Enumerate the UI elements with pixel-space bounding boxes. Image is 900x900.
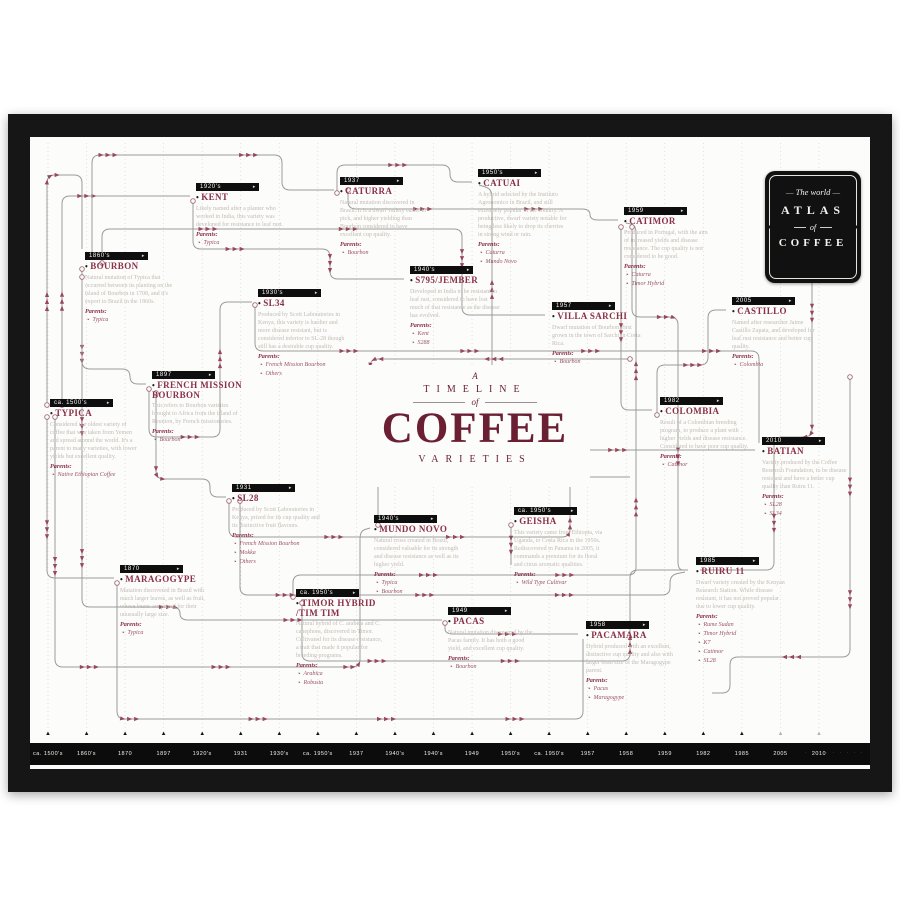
- variety-description: Natural mutation discovered in Brazil. I…: [340, 199, 430, 239]
- flow-arrow-icon: [634, 368, 638, 373]
- variety-node-timor-hybrid: ca. 1950's▸•TIMOR HYBRID /TIM TIMNatural…: [296, 589, 388, 688]
- parents-list: ‣ Kent‣ S288: [412, 330, 502, 348]
- axis-tick-triangle-icon: ▲: [546, 731, 552, 737]
- badge-arrow-icon: ▸: [353, 591, 356, 596]
- variety-node-sl28: 1931▸•SL28Produced by Scott Laboratories…: [232, 484, 324, 567]
- parents-list: ‣ SL28‣ SL34: [764, 501, 854, 519]
- poster-page: ▲▲▲▲▲▲▲▲▲▲▲▲▲▲▲▲▲▲▲▲▲ ca. 1500's▸•TYPICA…: [0, 0, 900, 900]
- axis-year-label: 1950's: [501, 751, 520, 757]
- variety-description: Likely named after a planter who worked …: [196, 205, 286, 229]
- parent-item: ‣ SL34: [764, 510, 854, 519]
- variety-name: •TYPICA: [50, 409, 142, 419]
- title-rule-left: [413, 402, 465, 403]
- logo-notch-right: [855, 226, 858, 229]
- axis-tick-triangle-icon: ▲: [508, 731, 514, 737]
- flow-arrow-icon: [810, 425, 814, 430]
- year-badge: 1870▸: [120, 565, 183, 573]
- flow-arrow-icon: [520, 717, 525, 721]
- flow-arrow-icon: [45, 520, 49, 525]
- flow-arrow-icon: [467, 349, 472, 353]
- year-badge: ca. 1500's▸: [50, 399, 113, 407]
- badge-arrow-icon: ▸: [609, 304, 612, 309]
- parents-label: Parents:: [152, 428, 244, 435]
- flow-arrow-icon: [484, 357, 489, 361]
- year-badge: ca. 1950's▸: [296, 589, 359, 597]
- axis-tick-triangle-icon: ▲: [662, 731, 668, 737]
- flow-arrow-icon: [240, 247, 245, 251]
- parents-list: ‣ French Mission Bourbon‣ Others: [260, 361, 350, 379]
- logo-notch-left: [768, 226, 771, 229]
- flow-arrow-icon: [460, 256, 464, 261]
- parent-item: ‣ Catimor: [698, 648, 788, 657]
- flow-arrow-icon: [263, 717, 268, 721]
- flow-arrow-icon: [60, 306, 64, 311]
- flow-arrow-icon: [402, 163, 407, 167]
- variety-node-sl34: 1930's▸•SL34Produced by Scott Laboratori…: [258, 289, 350, 379]
- axis-year-label: 1937: [349, 751, 363, 757]
- parent-item: ‣ Caturra: [626, 271, 716, 280]
- parent-arrow-icon: ‣: [412, 332, 415, 337]
- flow-arrow-icon: [388, 163, 393, 167]
- flow-arrow-icon: [848, 597, 852, 602]
- variety-description: Considered the oldest variety of coffee …: [50, 421, 140, 461]
- flow-arrow-icon: [378, 357, 383, 361]
- parent-arrow-icon: ‣: [764, 512, 767, 517]
- parent-item: ‣ Timor Hybrid: [626, 280, 716, 289]
- flow-arrow-icon: [45, 527, 49, 532]
- flow-arrow-icon: [702, 349, 707, 353]
- badge-arrow-icon: ▸: [643, 623, 646, 628]
- badge-arrow-icon: ▸: [431, 517, 434, 522]
- flow-arrow-icon: [45, 306, 49, 311]
- flow-arrow-icon: [218, 349, 222, 354]
- flow-arrow-icon: [506, 717, 511, 721]
- axis-year-label: 1958: [619, 751, 633, 757]
- year-label: ca. 1950's: [300, 590, 333, 596]
- flow-arrow-icon: [509, 550, 513, 555]
- year-badge: 1937▸: [340, 177, 403, 185]
- axis-tick-triangle-icon: ▲: [431, 731, 437, 737]
- flow-arrow-icon: [45, 299, 49, 304]
- flow-arrow-icon: [226, 247, 231, 251]
- year-badge: 1982▸: [660, 397, 723, 405]
- parent-arrow-icon: ‣: [698, 641, 701, 646]
- variety-name: •PACAMARA: [586, 631, 678, 641]
- variety-name: •RUIRU 11: [696, 567, 788, 577]
- flow-arrow-icon: [354, 349, 359, 353]
- flow-arrow-icon: [569, 593, 574, 597]
- variety-description: Developed in India to be resistant to le…: [410, 288, 500, 320]
- parent-item: ‣ Kent: [412, 330, 502, 339]
- flow-arrow-icon: [509, 536, 513, 541]
- variety-name: •SL34: [258, 299, 350, 309]
- flow-arrow-icon: [670, 315, 676, 319]
- axis-tick-triangle-icon: ▲: [700, 731, 706, 737]
- parent-item: ‣ Pacas: [588, 685, 678, 694]
- flow-arrow-icon: [622, 448, 627, 452]
- flow-arrow-icon: [555, 593, 560, 597]
- flow-arrow-icon: [291, 618, 296, 622]
- year-badge: 2005▸: [732, 297, 795, 305]
- parent-arrow-icon: ‣: [662, 463, 665, 468]
- parent-item: ‣ SL28: [698, 657, 788, 666]
- axis-year-label: 1870: [118, 751, 132, 757]
- flow-arrow-icon: [53, 564, 57, 569]
- variety-description: Result of a Colombian breeding program, …: [660, 419, 750, 451]
- node-bullet-icon: •: [696, 567, 699, 576]
- badge-arrow-icon: ▸: [571, 509, 574, 514]
- year-label: 1940's: [378, 516, 399, 522]
- flow-arrow-icon: [80, 556, 84, 561]
- parents-list: ‣ Colombia: [734, 361, 824, 370]
- node-bullet-icon: •: [624, 217, 627, 226]
- parent-arrow-icon: ‣: [450, 665, 453, 670]
- flow-arrow-icon: [84, 194, 89, 198]
- axis-tick-triangle-icon: ▲: [739, 731, 745, 737]
- flow-arrow-icon: [634, 497, 638, 502]
- variety-node-geisha: ca. 1950's▸•GEISHAThis variety came from…: [514, 507, 606, 588]
- axis-tick-triangle-icon: ▲: [315, 731, 321, 737]
- year-label: 1959: [628, 208, 644, 214]
- parents-list: ‣ Native Ethiopian Coffee: [52, 471, 142, 480]
- node-bullet-icon: •: [296, 599, 299, 608]
- title-rule-right: [485, 402, 537, 403]
- parent-item: ‣ Timor Hybrid: [698, 630, 788, 639]
- year-badge: 1940's▸: [374, 515, 437, 523]
- year-badge: 1957▸: [552, 302, 615, 310]
- variety-description: Natural mutation of Typica that occurred…: [85, 274, 175, 306]
- badge-arrow-icon: ▸: [467, 268, 470, 273]
- variety-description: Natural mutation discovered by the Pacas…: [448, 629, 538, 653]
- parent-arrow-icon: ‣: [480, 251, 483, 256]
- axis-year-label: ca. 1950's: [534, 751, 564, 757]
- axis-year-label: ca. 1500's: [33, 751, 63, 757]
- variety-name: •CATIMOR: [624, 217, 716, 227]
- parent-item: ‣ Wild Type Cultivar: [516, 579, 606, 588]
- parents-label: Parents:: [732, 353, 824, 360]
- path-origin-circle: [443, 621, 448, 626]
- node-bullet-icon: •: [152, 381, 155, 390]
- year-label: 1985: [700, 558, 716, 564]
- parents-list: ‣ Pacas‣ Maragogype: [588, 685, 678, 703]
- flow-arrow-icon: [233, 247, 238, 251]
- parents-label: Parents:: [120, 621, 212, 628]
- path-origin-circle: [115, 581, 120, 586]
- parents-list: ‣ Typica: [87, 316, 177, 325]
- parent-item: ‣ S288: [412, 339, 502, 348]
- flow-arrow-icon: [246, 153, 251, 157]
- flow-arrow-icon: [683, 363, 688, 367]
- flow-arrow-icon: [80, 665, 85, 669]
- parent-arrow-icon: ‣: [234, 560, 237, 565]
- path-origin-circle: [848, 375, 853, 380]
- flow-arrow-icon: [55, 173, 60, 177]
- variety-name: •MARAGOGYPE: [120, 575, 212, 585]
- badge-arrow-icon: ▸: [107, 401, 110, 406]
- year-badge: 1930's▸: [258, 289, 321, 297]
- parent-item: ‣ Maragogype: [588, 694, 678, 703]
- parent-arrow-icon: ‣: [154, 438, 157, 443]
- badge-arrow-icon: ▸: [753, 559, 756, 564]
- flow-arrow-icon: [848, 590, 852, 595]
- flow-arrow-icon: [53, 571, 57, 576]
- flow-arrow-icon: [634, 375, 638, 380]
- variety-name: •CATUAI: [478, 179, 570, 189]
- node-bullet-icon: •: [232, 494, 235, 503]
- badge-arrow-icon: ▸: [142, 254, 145, 259]
- year-badge: 1985▸: [696, 557, 759, 565]
- variety-node-batian: 2010▸•BATIANVariety produced by the Coff…: [762, 437, 854, 519]
- node-bullet-icon: •: [410, 276, 413, 285]
- node-bullet-icon: •: [196, 193, 199, 202]
- badge-arrow-icon: ▸: [177, 567, 180, 572]
- flow-arrow-icon: [460, 349, 465, 353]
- flow-arrow-icon: [848, 604, 852, 609]
- parent-arrow-icon: ‣: [698, 659, 701, 664]
- parent-item: ‣ Robusta: [298, 679, 388, 688]
- parent-item: ‣ Typica: [87, 316, 177, 325]
- parent-arrow-icon: ‣: [198, 241, 201, 246]
- flow-arrow-icon: [253, 153, 258, 157]
- node-bullet-icon: •: [120, 575, 123, 584]
- axis-tick-triangle-icon: ▲: [353, 731, 359, 737]
- variety-node-catimor: 1959▸•CATIMORProduced in Portugal, with …: [624, 207, 716, 289]
- flow-arrow-icon: [218, 356, 222, 361]
- parents-list: ‣ Typica: [198, 239, 288, 248]
- year-badge: 1860's▸: [85, 252, 148, 260]
- year-label: ca. 1500's: [54, 400, 87, 406]
- variety-description: This variety came from Ethiopia, via Uga…: [514, 529, 604, 569]
- parent-arrow-icon: ‣: [376, 590, 379, 595]
- parent-arrow-icon: ‣: [234, 551, 237, 556]
- parents-label: Parents:: [410, 322, 502, 329]
- year-label: 1937: [344, 178, 360, 184]
- parents-label: Parents:: [624, 263, 716, 270]
- flow-arrow-icon: [239, 153, 244, 157]
- parent-arrow-icon: ‣: [734, 363, 737, 368]
- title-coffee: COFFEE: [360, 408, 590, 450]
- variety-name: •TIMOR HYBRID /TIM TIM: [296, 599, 388, 618]
- parent-item: ‣ Others: [234, 558, 324, 567]
- path-origin-circle: [45, 415, 50, 420]
- parent-arrow-icon: ‣: [588, 687, 591, 692]
- parent-item: ‣ Bourbon: [450, 663, 540, 672]
- year-badge: 1959▸: [624, 207, 687, 215]
- atlas-of-coffee-logo: — The world — ATLAS of COFFEE: [765, 171, 861, 283]
- flow-arrow-icon: [45, 292, 49, 297]
- parents-label: Parents:: [552, 350, 644, 357]
- axis-year-label: 1957: [581, 751, 595, 757]
- flow-arrow-icon: [219, 665, 224, 669]
- parent-item: ‣ French Mission Bourbon: [234, 540, 324, 549]
- node-bullet-icon: •: [762, 447, 765, 456]
- flow-arrow-icon: [608, 448, 613, 452]
- parents-label: Parents:: [696, 613, 788, 620]
- axis-year-label: 1931: [234, 751, 248, 757]
- flow-arrow-icon: [634, 504, 638, 509]
- flow-arrow-icon: [789, 655, 794, 659]
- parent-arrow-icon: ‣: [626, 273, 629, 278]
- parents-list: ‣ Typica: [122, 629, 212, 638]
- parent-item: ‣ Bourbon: [554, 358, 644, 367]
- axis-year-label: 1985: [735, 751, 749, 757]
- parents-list: ‣ Typica‣ Bourbon: [376, 579, 466, 597]
- flow-arrow-icon: [391, 717, 396, 721]
- parents-label: Parents:: [374, 571, 466, 578]
- flow-arrow-icon: [53, 557, 57, 562]
- variety-description: Produced in Portugal, with the aim of in…: [624, 229, 714, 261]
- flow-arrow-icon: [395, 163, 400, 167]
- parents-label: Parents:: [340, 241, 432, 248]
- flow-arrow-icon: [87, 665, 92, 669]
- badge-arrow-icon: ▸: [535, 171, 538, 176]
- poster-title: A TIMELINE of COFFEE VARIETIES: [360, 365, 590, 487]
- variety-node-pacamara: 1958▸•PACAMARAHybrid produced with an ex…: [586, 621, 678, 703]
- variety-description: A hybrid selected by the Instituto Agron…: [478, 191, 568, 239]
- axis-tick-triangle-icon: ▲: [122, 731, 128, 737]
- parents-list: ‣ Bourbon: [154, 436, 244, 445]
- node-bullet-icon: •: [660, 407, 663, 416]
- flow-arrow-icon: [772, 521, 776, 526]
- variety-name: •GEISHA: [514, 517, 606, 527]
- flow-arrow-icon: [331, 535, 336, 539]
- badge-arrow-icon: ▸: [209, 373, 212, 378]
- parent-item: ‣ Native Ethiopian Coffee: [52, 471, 142, 480]
- flow-arrow-icon: [324, 535, 329, 539]
- variety-node-colombia: 1982▸•COLOMBIAResult of a Colombian bree…: [660, 397, 752, 470]
- flow-arrow-icon: [690, 363, 695, 367]
- parent-arrow-icon: ‣: [698, 632, 701, 637]
- flow-arrow-icon: [134, 717, 139, 721]
- axis-year-label: 2005: [773, 751, 787, 757]
- parents-label: Parents:: [50, 463, 142, 470]
- flow-arrow-icon: [283, 593, 288, 597]
- path-origin-circle: [655, 413, 660, 418]
- poster-frame: ▲▲▲▲▲▲▲▲▲▲▲▲▲▲▲▲▲▲▲▲▲ ca. 1500's▸•TYPICA…: [8, 114, 892, 792]
- parent-arrow-icon: ‣: [376, 581, 379, 586]
- parent-item: ‣ Catimor: [662, 461, 752, 470]
- node-bullet-icon: •: [340, 187, 343, 196]
- variety-node-ruiru-11: 1985▸•RUIRU 11Dwarf variety created by t…: [696, 557, 788, 666]
- parents-list: ‣ Wild Type Cultivar: [516, 579, 606, 588]
- badge-arrow-icon: ▸: [397, 179, 400, 184]
- parent-item: ‣ Bourbon: [342, 249, 432, 258]
- flow-arrow-icon: [509, 543, 513, 548]
- parent-arrow-icon: ‣: [626, 282, 629, 287]
- flow-arrow-icon: [498, 357, 503, 361]
- parent-arrow-icon: ‣: [234, 542, 237, 547]
- year-label: 1870: [124, 566, 140, 572]
- variety-node-mundo-novo: 1940's▸•MUNDO NOVONatural cross created …: [374, 515, 466, 597]
- flow-arrow-icon: [276, 593, 281, 597]
- parents-list: ‣ Catimor: [662, 461, 752, 470]
- variety-node-kent: 1920's▸•KENTLikely named after a planter…: [196, 183, 288, 248]
- axis-year-label: 1940's: [385, 751, 404, 757]
- axis-tick-triangle-icon: ▲: [238, 731, 244, 737]
- variety-name: •BATIAN: [762, 447, 854, 457]
- badge-arrow-icon: ▸: [717, 399, 720, 404]
- year-badge: 1920's▸: [196, 183, 259, 191]
- node-bullet-icon: •: [478, 179, 481, 188]
- year-label: 1920's: [200, 184, 221, 190]
- parents-label: Parents:: [232, 532, 324, 539]
- parent-item: ‣ Mokka: [234, 549, 324, 558]
- parent-item: ‣ Arabica: [298, 670, 388, 679]
- variety-name: •MUNDO NOVO: [374, 525, 466, 535]
- path-origin-circle: [80, 275, 85, 280]
- axis-tick-triangle-icon: ▲: [45, 731, 51, 737]
- node-bullet-icon: •: [50, 409, 53, 418]
- path-origin-circle: [509, 523, 514, 528]
- year-badge: 2010▸: [762, 437, 825, 445]
- flow-arrow-icon: [474, 349, 479, 353]
- variety-node-catuai: 1950's▸•CATUAIA hybrid selected by the I…: [478, 169, 570, 267]
- badge-arrow-icon: ▸: [253, 185, 256, 190]
- parents-label: Parents:: [660, 453, 752, 460]
- flow-arrow-icon: [127, 717, 132, 721]
- flow-arrow-icon: [796, 655, 801, 659]
- parent-item: ‣ Rume Sudan: [698, 621, 788, 630]
- lineage-path: [47, 175, 82, 405]
- year-label: 1950's: [482, 170, 503, 176]
- parent-arrow-icon: ‣: [298, 681, 301, 686]
- variety-name: •VILLA SARCHI: [552, 312, 644, 322]
- parent-item: ‣ Others: [260, 370, 350, 379]
- parent-item: ‣ Caturra: [480, 249, 570, 258]
- year-badge: 1931▸: [232, 484, 295, 492]
- flow-arrow-icon: [80, 563, 84, 568]
- variety-description: Natural cross created in Brazil, conside…: [374, 537, 464, 569]
- timeline-canvas: ▲▲▲▲▲▲▲▲▲▲▲▲▲▲▲▲▲▲▲▲▲ ca. 1500's▸•TYPICA…: [30, 137, 870, 769]
- variety-description: Produced by Scott Laboratories in Kenya,…: [232, 506, 322, 530]
- parent-item: ‣ Colombia: [734, 361, 824, 370]
- axis-year-label: 2010: [812, 751, 826, 757]
- flow-arrow-icon: [106, 153, 111, 157]
- flow-arrow-icon: [562, 593, 567, 597]
- flow-arrow-icon: [615, 448, 620, 452]
- path-origin-circle: [147, 387, 152, 392]
- parent-item: ‣ SL28: [764, 501, 854, 510]
- axis-year-label: 1930's: [270, 751, 289, 757]
- path-origin-circle: [45, 403, 50, 408]
- year-badge: 1940's▸: [410, 266, 473, 274]
- flow-arrow-icon: [45, 179, 49, 184]
- variety-node-french-mission: 1897▸•FRENCH MISSION BOURBONThis refers …: [152, 371, 244, 445]
- axis-year-label: 1897: [157, 751, 171, 757]
- path-origin-circle: [253, 303, 258, 308]
- year-label: 1931: [236, 485, 252, 491]
- year-label: ca. 1950's: [518, 508, 551, 514]
- path-origin-circle: [227, 499, 232, 504]
- flow-arrow-icon: [460, 249, 464, 254]
- flow-arrow-icon: [113, 153, 118, 157]
- parent-arrow-icon: ‣: [260, 372, 263, 377]
- parent-arrow-icon: ‣: [52, 473, 55, 478]
- variety-description: Hybrid produced with an excellent, disti…: [586, 643, 676, 675]
- axis-tick-triangle-icon: ▲: [585, 731, 591, 737]
- parents-list: ‣ Arabica‣ Robusta: [298, 670, 388, 688]
- flow-arrow-icon: [809, 431, 814, 437]
- flow-arrow-icon: [249, 717, 254, 721]
- flow-arrow-icon: [664, 315, 669, 319]
- axis-tick-triangle-icon: ▲: [777, 731, 783, 737]
- flow-arrow-icon: [284, 618, 289, 622]
- axis-tick-triangle-icon: ▲: [816, 731, 822, 737]
- node-bullet-icon: •: [514, 517, 517, 526]
- axis-year-label: 1949: [465, 751, 479, 757]
- axis-year-label: 1959: [658, 751, 672, 757]
- parents-label: Parents:: [478, 241, 570, 248]
